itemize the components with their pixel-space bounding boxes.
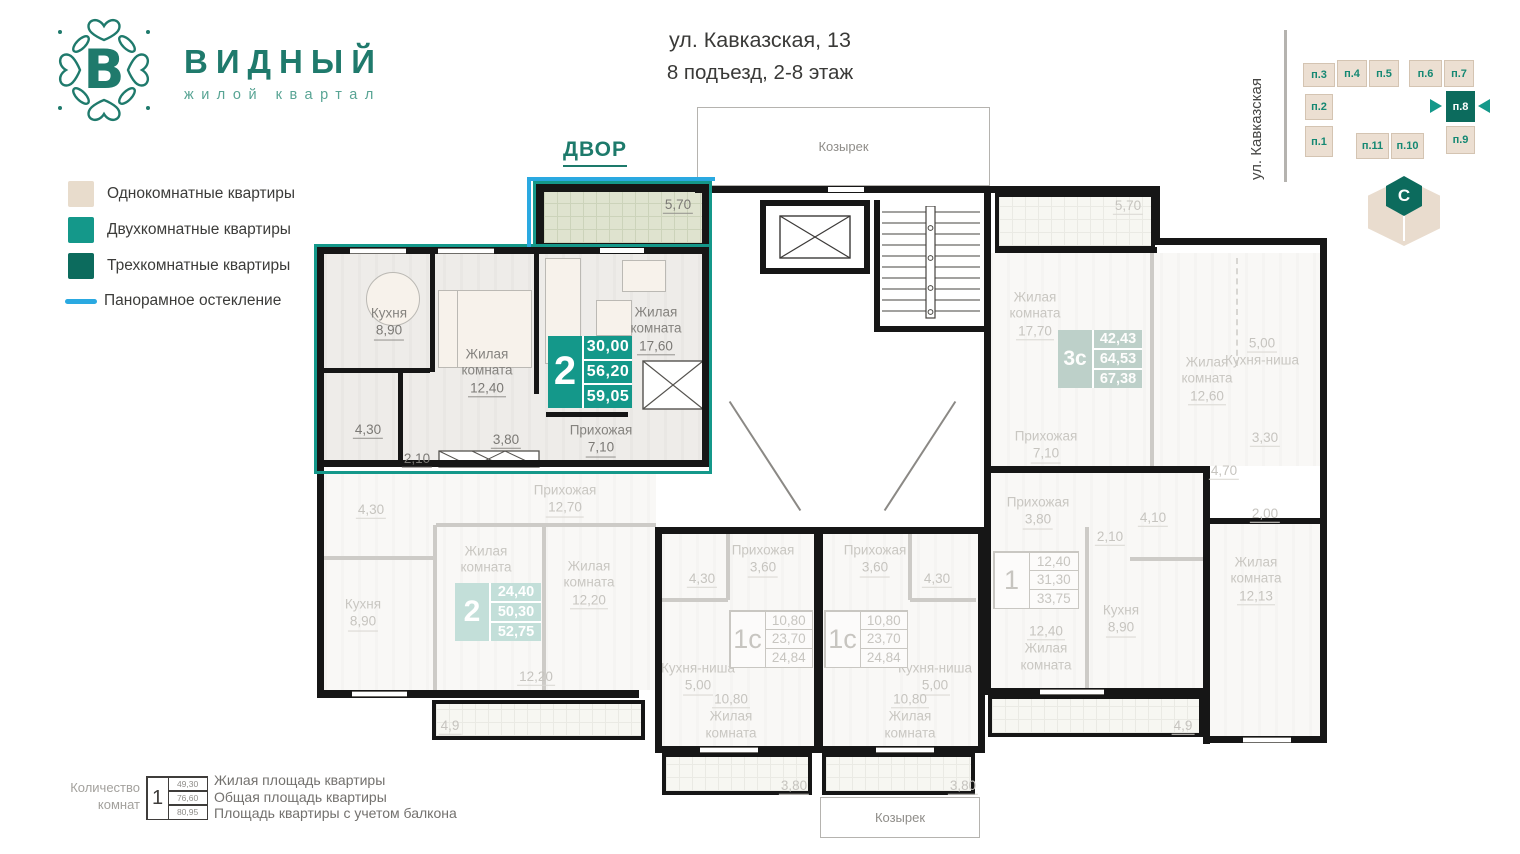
sample-rooms: 1 bbox=[148, 778, 168, 819]
apartment-d-stat[interactable]: 1с 10,80 23,70 24,84 bbox=[824, 610, 908, 668]
minimap-block-p3[interactable]: п.3 bbox=[1303, 63, 1335, 87]
room-label-b-bedroom1: Жилая комната bbox=[444, 544, 528, 577]
room-label-e-balcony: 5,70 bbox=[1113, 197, 1143, 215]
room-label-b-hall: Прихожая12,70 bbox=[534, 483, 597, 518]
room-label-e-living3: Жилая комната12,13 bbox=[1214, 554, 1298, 605]
apartment-c-rooms: 1с bbox=[731, 612, 765, 667]
apartment-b-rooms: 2 bbox=[455, 583, 489, 641]
room-label-d-balcony: 3,80 bbox=[948, 777, 978, 795]
room-label-c-living: Жилая комната10,80 bbox=[689, 690, 773, 741]
apartment-e-stat[interactable]: 3с 42,43 64,53 67,38 bbox=[1058, 330, 1142, 388]
sample-stat-box: 1 49,30 76,60 80,95 bbox=[146, 776, 208, 820]
apartment-d-rooms: 1с bbox=[826, 612, 860, 667]
selected-arrow-left-icon bbox=[1430, 99, 1442, 113]
minimap-block-p4[interactable]: п.4 bbox=[1337, 60, 1367, 87]
apartment-a-rooms: 2 bbox=[548, 336, 582, 408]
room-label-f-kitchen: Кухня8,90 bbox=[1103, 603, 1139, 638]
canopy-bottom: Козырек bbox=[820, 797, 980, 838]
minimap-block-p2[interactable]: п.2 bbox=[1305, 94, 1333, 120]
panoramic-glazing-left bbox=[527, 177, 531, 247]
room-label-b-bedroom1-area: 12,20 bbox=[517, 668, 555, 686]
room-label-e-hall2: 4,70 bbox=[1209, 462, 1239, 480]
room-label-a-bedroom: Жилая комната12,40 bbox=[445, 346, 529, 397]
room-label-e-hall: Прихожая7,10 bbox=[1015, 429, 1078, 464]
apartment-f-rooms: 1 bbox=[995, 553, 1029, 608]
room-label-a-corridor: 3,80 bbox=[491, 431, 521, 449]
minimap-block-p8-selected[interactable]: п.8 bbox=[1446, 91, 1475, 122]
area-explanations: Жилая площадь квартиры Общая площадь ква… bbox=[214, 772, 457, 822]
room-label-e-living2: Жилая комната12,60 bbox=[1165, 354, 1249, 405]
panoramic-glazing-top bbox=[527, 177, 715, 181]
floor-plan: ДВОР Козырек Козырек bbox=[0, 0, 1520, 854]
room-label-f-living: Жилая комната12,40 bbox=[1004, 622, 1088, 673]
room-label-c-bath: 4,30 bbox=[687, 570, 717, 588]
room-label-c-hall: Прихожая3,60 bbox=[732, 543, 795, 578]
minimap-block-p7[interactable]: п.7 bbox=[1444, 60, 1474, 87]
minimap-block-p11[interactable]: п.11 bbox=[1356, 133, 1389, 159]
minimap-block-p5[interactable]: п.5 bbox=[1369, 60, 1399, 87]
apartment-f-stat[interactable]: 1 12,40 31,30 33,75 bbox=[993, 551, 1079, 609]
room-label-c-balcony: 3,80 bbox=[779, 777, 809, 795]
room-label-f-hall: Прихожая3,80 bbox=[1007, 495, 1070, 530]
room-label-f-wc: 2,10 bbox=[1095, 528, 1125, 546]
room-label-a-hall: Прихожая7,10 bbox=[570, 423, 633, 458]
room-label-a-bath: 4,30 bbox=[353, 421, 383, 439]
room-label-b-bedroom2: Жилая комната12,20 bbox=[547, 558, 631, 609]
room-label-b-kitchen: Кухня8,90 bbox=[345, 597, 381, 632]
room-label-b-balcony: 4,9 bbox=[439, 717, 462, 735]
rooms-count-label: Количество комнат bbox=[62, 779, 140, 813]
dvor-label: ДВОР bbox=[563, 138, 627, 167]
minimap-block-p9[interactable]: п.9 bbox=[1446, 126, 1475, 154]
minimap-block-p1[interactable]: п.1 bbox=[1305, 126, 1333, 157]
apartment-a-total-area: 56,20 bbox=[584, 361, 632, 384]
canopy-top: Козырек bbox=[697, 107, 990, 186]
selected-arrow-right-icon bbox=[1478, 99, 1490, 113]
room-label-d-living: Жилая комната10,80 bbox=[868, 690, 952, 741]
room-label-f-bath: 4,10 bbox=[1138, 509, 1168, 527]
room-label-d-bath: 4,30 bbox=[922, 570, 952, 588]
room-label-e-wc: 2,00 bbox=[1250, 505, 1280, 523]
canopy-bottom-label: Козырек bbox=[875, 810, 925, 825]
room-label-f-balcony: 4,9 bbox=[1172, 717, 1195, 735]
apartment-a-balcony-area: 59,05 bbox=[584, 385, 632, 408]
apartment-e-rooms: 3с bbox=[1058, 330, 1092, 388]
apartment-a-living-area: 30,00 bbox=[584, 336, 632, 359]
room-label-a-wc: 2,10 bbox=[402, 450, 432, 468]
apartment-c-stat[interactable]: 1с 10,80 23,70 24,84 bbox=[729, 610, 813, 668]
room-label-d-hall: Прихожая3,60 bbox=[844, 543, 907, 578]
room-label-a-kitchen: Кухня8,90 bbox=[371, 306, 407, 341]
apartment-a-stat[interactable]: 2 30,00 56,20 59,05 bbox=[548, 336, 632, 408]
apartment-b-stat[interactable]: 2 24,40 50,30 52,75 bbox=[455, 583, 541, 641]
stairs bbox=[882, 206, 980, 329]
elevator-shaft bbox=[760, 200, 870, 274]
room-label-a-balcony: 5,70 bbox=[663, 196, 693, 214]
room-label-b-bath: 4,30 bbox=[356, 501, 386, 519]
room-label-e-bath: 3,30 bbox=[1250, 429, 1280, 447]
canopy-top-label: Козырек bbox=[818, 139, 868, 154]
minimap-block-p6[interactable]: п.6 bbox=[1409, 60, 1442, 87]
minimap-block-p10[interactable]: п.10 bbox=[1391, 133, 1424, 159]
page: В ВИДНЫЙ жилой квартал ул. Кавказская, 1… bbox=[0, 0, 1520, 854]
